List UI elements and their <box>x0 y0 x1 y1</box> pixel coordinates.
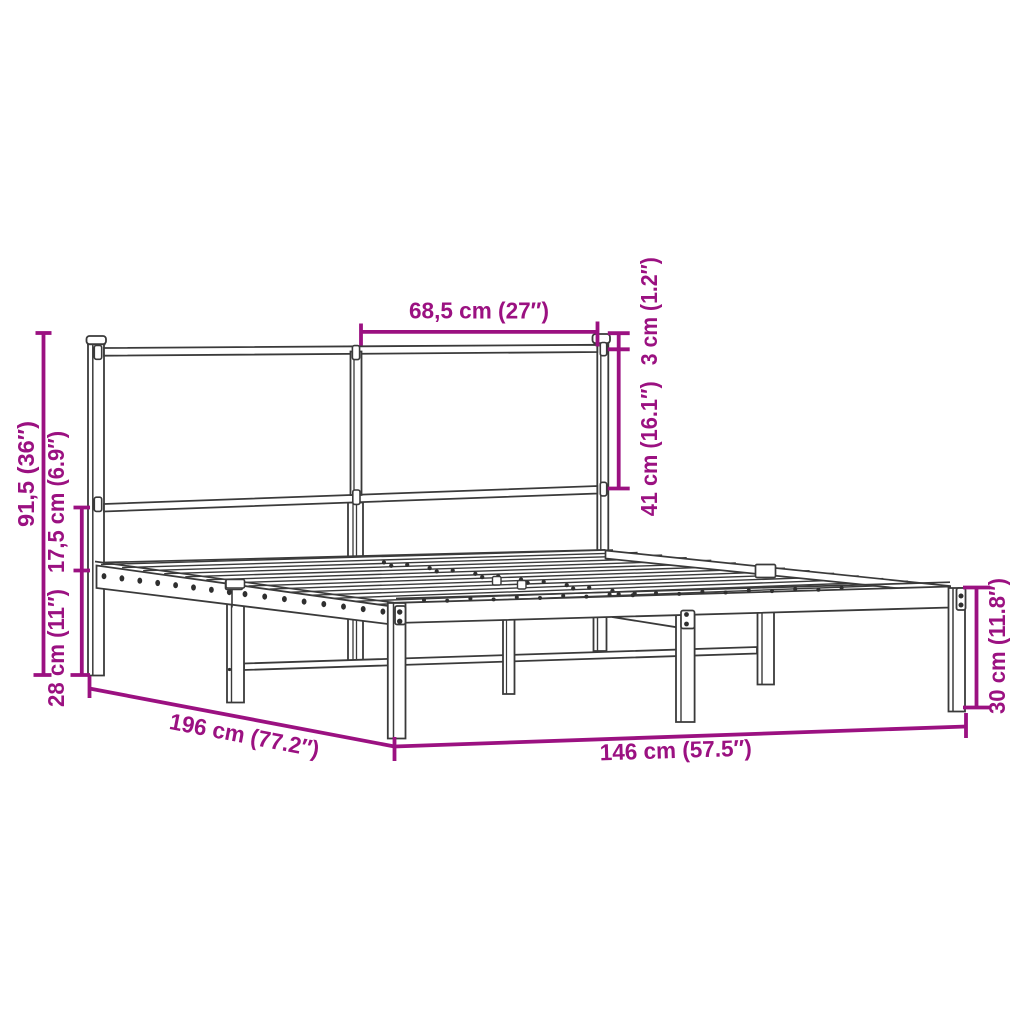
svg-text:17,5 cm (6.9″): 17,5 cm (6.9″) <box>43 431 69 573</box>
svg-text:68,5 cm (27″): 68,5 cm (27″) <box>409 298 549 324</box>
svg-text:41 cm (16.1″): 41 cm (16.1″) <box>636 381 662 516</box>
svg-text:3 cm (1.2″): 3 cm (1.2″) <box>636 257 662 365</box>
svg-text:28 cm (11″): 28 cm (11″) <box>43 589 69 707</box>
svg-text:30 cm (11.8″): 30 cm (11.8″) <box>984 578 1010 714</box>
svg-text:91,5 (36″): 91,5 (36″) <box>13 421 39 527</box>
svg-text:146 cm (57.5″): 146 cm (57.5″) <box>599 735 752 766</box>
